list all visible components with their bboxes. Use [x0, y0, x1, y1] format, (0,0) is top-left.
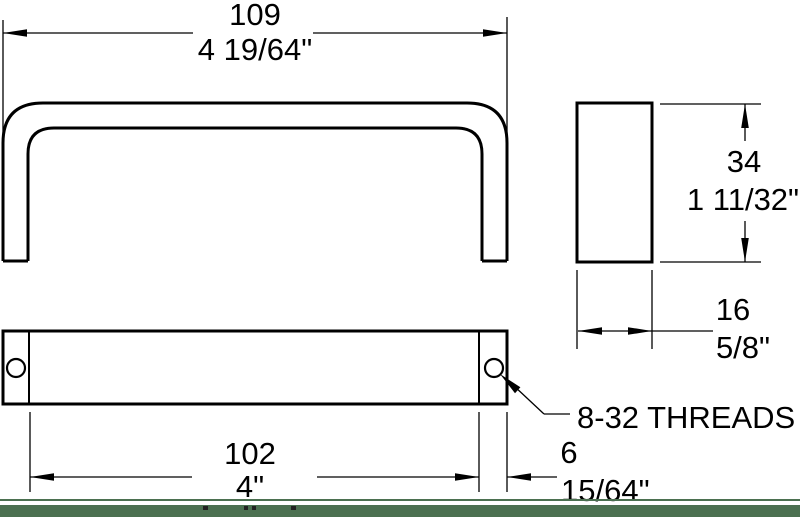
- dimension-height: 34 1 11/32": [660, 104, 799, 262]
- dimension-value-mm: 109: [229, 0, 281, 32]
- accent-top-line: [0, 499, 800, 501]
- arrowhead-right: [455, 473, 479, 481]
- mounting-hole-left: [7, 359, 25, 377]
- arrowhead-down: [741, 238, 749, 262]
- arrowhead-right: [628, 327, 652, 335]
- dimension-value-mm: 34: [727, 144, 761, 179]
- arrowhead-up: [741, 104, 749, 128]
- dimension-value-inch: 5/8": [716, 330, 770, 365]
- arrowhead-left: [578, 327, 602, 335]
- dimension-overall-width: 109 4 19/64": [3, 0, 507, 157]
- dimension-value-inch: 15/64": [561, 473, 650, 508]
- handle-technical-drawing: 109 4 19/64" 34 1 11/32" 16 5/8" 102 4": [0, 0, 800, 517]
- handle-front-view: [3, 103, 507, 261]
- leader-arrowhead: [500, 374, 520, 393]
- clipped-text-speck: [244, 506, 248, 510]
- dimension-value-mm: 102: [224, 436, 276, 471]
- accent-bar: [0, 505, 800, 517]
- thread-note-text: 8-32 THREADS: [577, 400, 795, 435]
- dimension-value-mm: 16: [716, 292, 750, 327]
- clipped-text-speck: [252, 506, 256, 510]
- leader-line: [513, 385, 544, 414]
- arrowhead-left: [3, 29, 27, 37]
- arrowhead-right: [483, 29, 507, 37]
- thread-callout: 8-32 THREADS: [500, 374, 795, 435]
- dimension-value-mm: 6: [560, 435, 577, 470]
- handle-inner-contour: [28, 128, 482, 261]
- arrowhead-left: [507, 473, 531, 481]
- bottom-accent: [0, 499, 800, 517]
- dimension-value-inch: 4": [236, 469, 264, 504]
- handle-side-view: [577, 103, 652, 262]
- arrowhead-left: [30, 473, 54, 481]
- dimension-value-inch: 1 11/32": [687, 182, 799, 217]
- drawing-page: 109 4 19/64" 34 1 11/32" 16 5/8" 102 4": [0, 0, 800, 517]
- dimension-depth: 16 5/8": [577, 270, 770, 365]
- clipped-text-speck: [291, 506, 296, 510]
- dimension-hole-centers: 102 4": [30, 412, 479, 504]
- dimension-value-inch: 4 19/64": [198, 32, 312, 67]
- bottom-view-body: [3, 331, 507, 404]
- handle-bottom-view: [3, 331, 507, 404]
- clipped-text-speck: [203, 506, 208, 510]
